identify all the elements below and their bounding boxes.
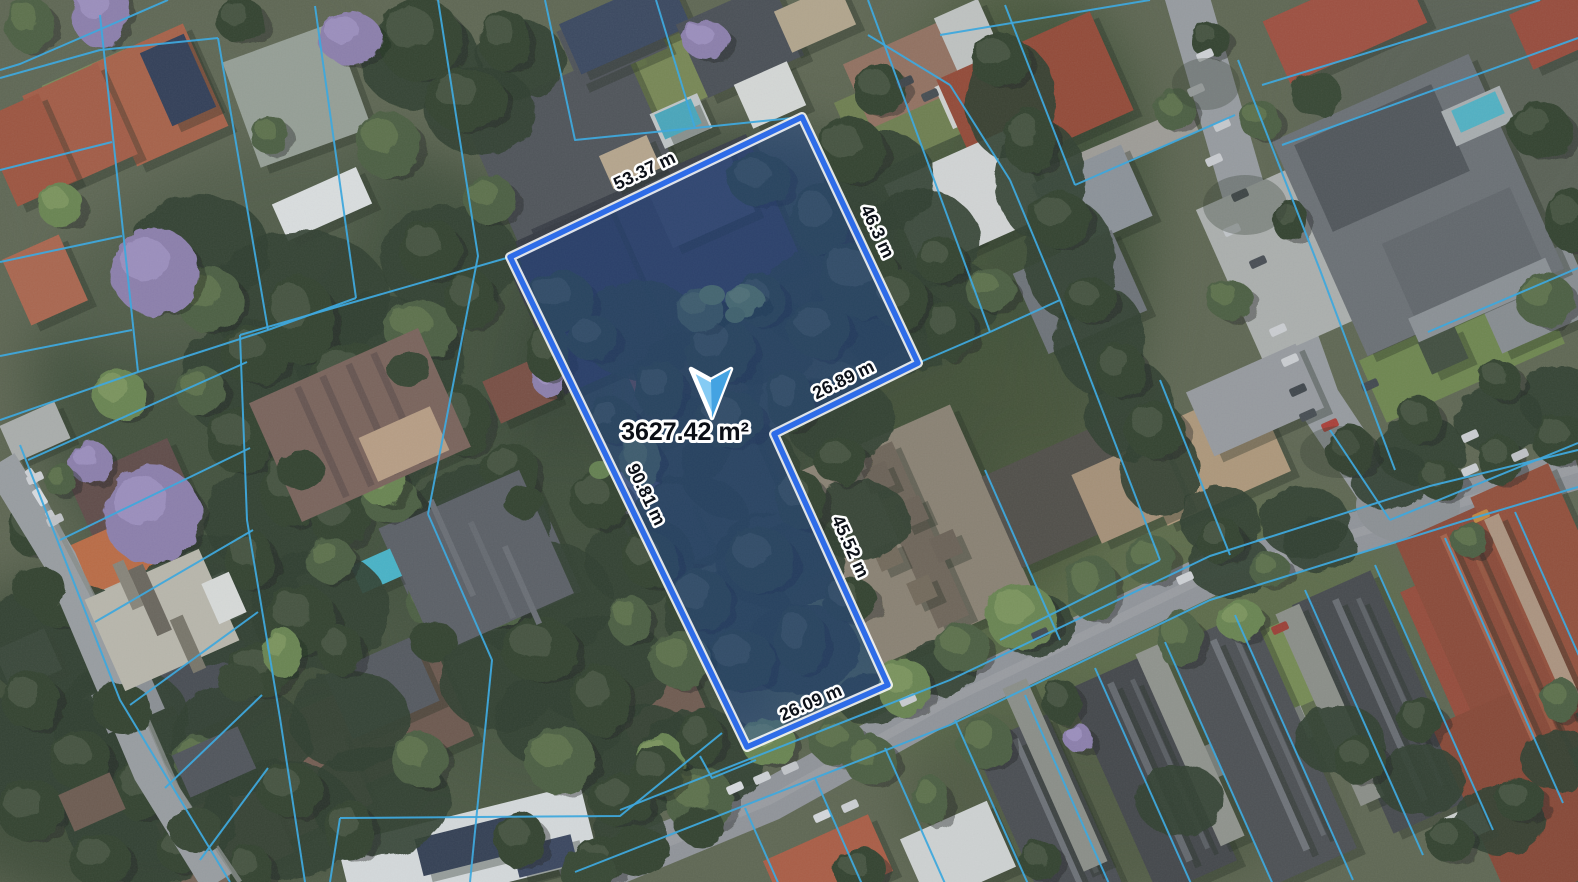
svg-text:3627.42 m²: 3627.42 m² (621, 418, 749, 446)
